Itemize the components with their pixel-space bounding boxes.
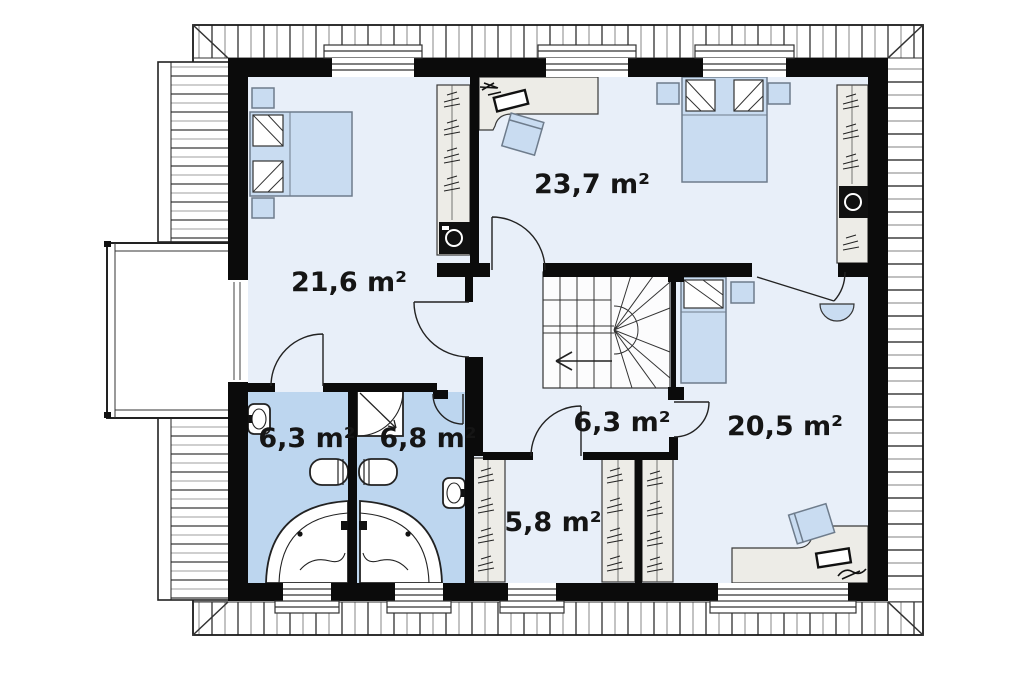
pillow [253,115,283,146]
floor-plan-canvas: 21,6 m² 23,7 m² 6,3 m² 6,8 m² 6,3 m² 5,8… [0,0,1024,677]
window [324,45,422,77]
wardrobe [473,458,505,582]
toilet [359,459,397,485]
pillow [734,80,763,111]
window [275,583,339,613]
window [710,583,856,613]
pillow [686,80,715,111]
side-roof-bay-top [158,62,230,242]
wardrobe [837,85,868,263]
washing-machine [839,186,868,218]
window [500,583,564,613]
room-area-label-bedroom-top-right: 23,7 m² [534,169,650,200]
nightstand [252,88,274,108]
wardrobe [437,85,470,255]
window [538,45,636,77]
balcony [104,241,232,418]
room-area-label-bathroom-right: 6,8 m² [379,423,476,454]
wardrobe [602,458,635,582]
room-area-label-bedroom-left: 21,6 m² [291,267,407,298]
room-area-label-bedroom-bottom-right: 20,5 m² [727,411,843,442]
toilet [310,459,348,485]
side-roof-bay-bottom [158,418,230,600]
window [695,45,794,77]
nightstand [252,198,274,218]
winder-staircase [543,272,670,388]
nightstand [657,83,679,104]
nightstand [731,282,754,303]
pillow [684,280,723,308]
room-area-label-wardrobe-room: 5,8 m² [504,507,601,538]
wardrobe [642,458,673,582]
pillow [253,161,283,192]
floor-plan-page: 21,6 m² 23,7 m² 6,3 m² 6,8 m² 6,3 m² 5,8… [0,0,1024,677]
window [387,583,451,613]
nightstand [768,83,790,104]
room-area-label-bathroom-left: 6,3 m² [258,423,355,454]
washbasin [443,478,466,508]
room-area-label-hallway: 6,3 m² [573,407,670,438]
balcony-door [228,280,248,382]
